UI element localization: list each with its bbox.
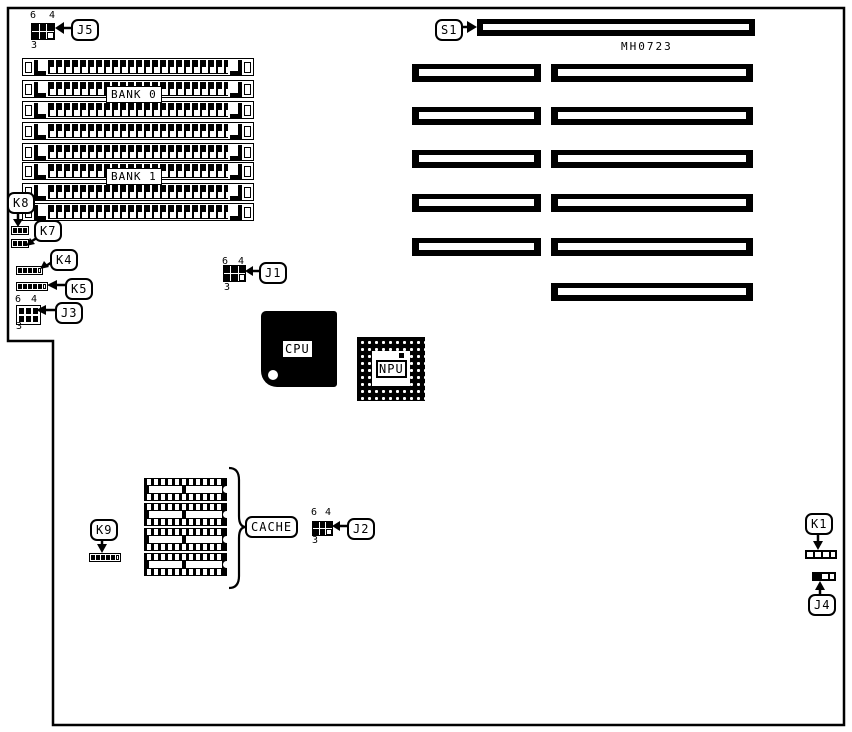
pin1-dot-icon — [268, 370, 278, 380]
slot-stripe — [558, 288, 746, 295]
pin — [815, 552, 823, 557]
pin — [23, 228, 27, 233]
connector-k1 — [805, 550, 837, 559]
pin — [111, 555, 115, 560]
callout-k5: K5 — [65, 278, 93, 300]
latch-icon — [230, 103, 242, 118]
pin — [38, 268, 41, 273]
pin — [33, 284, 37, 289]
jumper-pin — [313, 522, 319, 528]
callout-k9: K9 — [90, 519, 118, 541]
memory-slot-7 — [22, 183, 254, 201]
npu-label: NPU — [376, 360, 407, 378]
latch-icon — [34, 82, 46, 97]
latch-icon — [244, 207, 251, 218]
jumper-pin — [224, 266, 230, 273]
jumper-pin — [33, 316, 38, 322]
jumper-pin — [231, 274, 237, 281]
latch-icon — [34, 164, 46, 179]
pin — [823, 552, 831, 557]
callout-k4: K4 — [50, 249, 78, 271]
connector-k4 — [16, 266, 43, 275]
slot-stripe — [419, 69, 534, 76]
pin — [18, 268, 22, 273]
jumper-pin — [19, 308, 24, 314]
memory-slot-1 — [22, 58, 254, 76]
pin — [23, 241, 27, 246]
latch-icon — [34, 103, 46, 118]
jumper-j5-block — [31, 23, 55, 40]
pin-number: 4 — [31, 295, 37, 305]
memory-slot-3 — [22, 101, 254, 119]
pin-number: 4 — [325, 508, 331, 518]
jumper-pin — [47, 24, 54, 31]
jumper-pin — [32, 24, 39, 31]
slot-stripe — [558, 155, 746, 162]
pin-number: 6 — [30, 11, 36, 21]
expansion-slot-long — [551, 194, 753, 212]
expansion-slot-short — [412, 238, 541, 256]
pin-number: 3 — [16, 322, 22, 332]
jumper-pin — [231, 266, 237, 273]
pin-number: 3 — [312, 536, 318, 546]
latch-icon — [244, 166, 251, 177]
slot-stripe — [558, 112, 746, 119]
jumper-pin — [224, 274, 230, 281]
connector-k8 — [11, 226, 29, 235]
pin — [28, 268, 32, 273]
pin — [13, 228, 17, 233]
latch-icon — [34, 124, 46, 139]
cache-chip-1 — [144, 478, 227, 501]
callout-k8: K8 — [7, 192, 35, 214]
slot-stripe — [558, 243, 746, 250]
memory-slot-4 — [22, 122, 254, 140]
pin — [23, 284, 27, 289]
cache-chip-2 — [144, 503, 227, 526]
pin — [18, 241, 22, 246]
latch-icon — [34, 185, 46, 200]
callout-k1: K1 — [805, 513, 833, 535]
latch-icon — [230, 82, 242, 97]
connector-stripe — [483, 24, 749, 30]
pin — [807, 552, 815, 557]
pin — [814, 574, 822, 579]
pin — [116, 555, 119, 560]
simm-contacts — [48, 145, 228, 158]
pin — [106, 555, 110, 560]
connector-k7 — [11, 239, 29, 248]
memory-slot-8 — [22, 203, 254, 221]
latch-icon — [25, 147, 32, 158]
slot-stripe — [419, 112, 534, 119]
connector-s1 — [477, 19, 755, 36]
connector-k5 — [16, 282, 48, 291]
pin — [18, 284, 22, 289]
pin — [18, 228, 22, 233]
callout-s1: S1 — [435, 19, 463, 41]
latch-icon — [34, 205, 46, 220]
jumper-pin — [239, 266, 245, 273]
npu-socket-center: NPU — [372, 351, 410, 386]
simm-contacts — [48, 103, 228, 116]
latch-icon — [230, 124, 242, 139]
slot-stripe — [419, 155, 534, 162]
expansion-slot-long — [551, 283, 753, 301]
pin — [96, 555, 100, 560]
jumper-pin — [40, 24, 47, 31]
pin — [43, 284, 46, 289]
latch-icon — [25, 166, 32, 177]
jumper-pin — [26, 316, 31, 322]
simm-contacts — [48, 60, 228, 73]
latch-icon — [25, 126, 32, 137]
npu-socket: NPU — [357, 337, 425, 401]
jumper-pin — [33, 308, 38, 314]
pin — [830, 574, 834, 579]
jumper-j3-pin-numbers: 6 4 — [15, 295, 37, 305]
callout-k7: K7 — [34, 220, 62, 242]
simm-contacts — [48, 185, 228, 198]
pin-number: 6 — [15, 295, 21, 305]
slot-stripe — [419, 199, 534, 206]
expansion-slot-long — [551, 238, 753, 256]
pin — [91, 555, 95, 560]
latch-icon — [230, 185, 242, 200]
expansion-slot-long — [551, 107, 753, 125]
latch-icon — [244, 126, 251, 137]
latch-icon — [25, 105, 32, 116]
expansion-slot-long — [551, 150, 753, 168]
jumper-pin-open — [326, 529, 332, 535]
latch-icon — [25, 62, 32, 73]
latch-icon — [25, 84, 32, 95]
latch-icon — [244, 147, 251, 158]
memory-slot-5 — [22, 143, 254, 161]
cpu-label: CPU — [283, 341, 312, 357]
slot-stripe — [558, 199, 746, 206]
callout-j2: J2 — [347, 518, 375, 540]
cache-chip-3 — [144, 528, 227, 551]
connector-j4 — [812, 572, 836, 581]
latch-icon — [244, 62, 251, 73]
motherboard-diagram: 6 4 3 J5 BANK 0 BANK 1 K8 K7 K4 K5 6 4 3… — [0, 0, 852, 732]
pin-number: 6 — [311, 508, 317, 518]
connector-k9 — [89, 553, 121, 562]
jumper-j5-pin-numbers: 6 4 — [30, 11, 55, 21]
simm-contacts — [48, 124, 228, 137]
latch-icon — [244, 105, 251, 116]
pin-number: 3 — [31, 41, 37, 51]
pin — [101, 555, 105, 560]
callout-j5: J5 — [71, 19, 99, 41]
bank0-label: BANK 0 — [106, 86, 162, 103]
jumper-pin — [320, 529, 326, 535]
jumper-pin-open — [239, 274, 245, 281]
expansion-slot-short — [412, 64, 541, 82]
jumper-pin — [32, 32, 39, 39]
latch-icon — [230, 60, 242, 75]
latch-icon — [230, 205, 242, 220]
pin — [28, 284, 32, 289]
slot-stripe — [419, 243, 534, 250]
pin-number: 4 — [49, 11, 55, 21]
callout-j4: J4 — [808, 594, 836, 616]
callout-j1: J1 — [259, 262, 287, 284]
jumper-j1-block — [223, 265, 246, 282]
pin — [822, 574, 830, 579]
pin — [38, 284, 42, 289]
jumper-pin — [326, 522, 332, 528]
latch-icon — [244, 187, 251, 198]
latch-icon — [230, 164, 242, 179]
jumper-pin — [320, 522, 326, 528]
expansion-slot-short — [412, 107, 541, 125]
pin — [13, 241, 17, 246]
jumper-j2-pin-numbers: 6 4 — [311, 508, 331, 518]
part-number: MH0723 — [621, 40, 673, 53]
jumper-j2-block — [312, 521, 333, 536]
cpu-chip: CPU — [261, 311, 337, 387]
latch-icon — [230, 145, 242, 160]
expansion-slot-short — [412, 194, 541, 212]
bank1-label: BANK 1 — [106, 168, 162, 185]
jumper-pin — [40, 32, 47, 39]
callout-j3: J3 — [55, 302, 83, 324]
callout-cache: CACHE — [245, 516, 298, 538]
pin — [23, 268, 27, 273]
cache-chip-4 — [144, 553, 227, 576]
pin-number: 3 — [224, 283, 230, 293]
pin — [33, 268, 37, 273]
pin — [831, 552, 835, 557]
latch-icon — [34, 60, 46, 75]
expansion-slot-short — [412, 150, 541, 168]
slot-stripe — [558, 69, 746, 76]
latch-icon — [34, 145, 46, 160]
jumper-pin-open — [47, 32, 54, 39]
expansion-slot-long — [551, 64, 753, 82]
jumper-pin — [26, 308, 31, 314]
simm-contacts — [48, 205, 228, 218]
latch-icon — [244, 84, 251, 95]
pin1-dot-icon — [399, 353, 404, 358]
